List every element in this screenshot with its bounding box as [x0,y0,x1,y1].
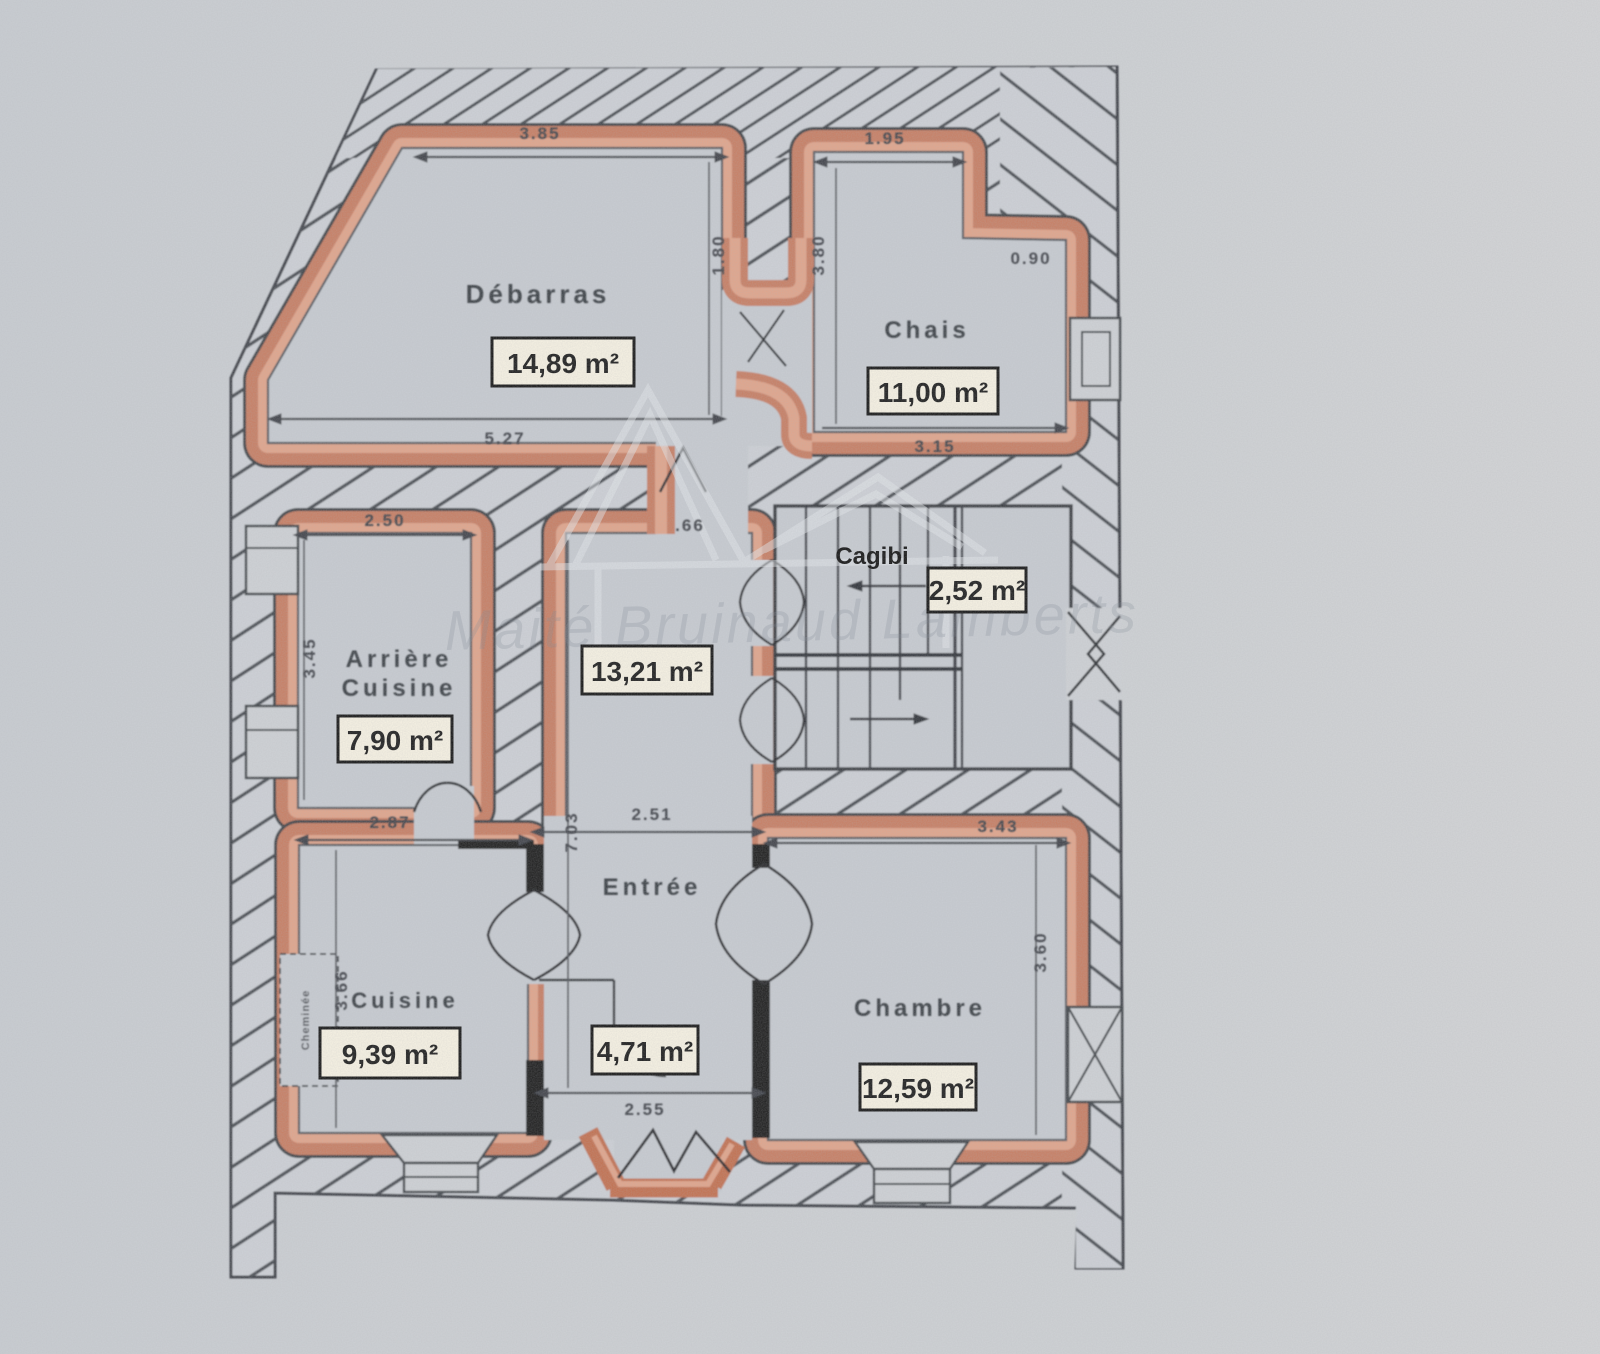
svg-text:2.50: 2.50 [364,511,405,530]
svg-text:2,52 m²: 2,52 m² [929,575,1026,606]
svg-text:Chais: Chais [884,317,969,344]
svg-text:12,59 m²: 12,59 m² [862,1073,974,1104]
svg-text:1.95: 1.95 [864,129,905,148]
svg-text:Débarras: Débarras [466,279,611,309]
svg-text:1.80: 1.80 [709,234,728,275]
svg-text:3.45: 3.45 [300,637,319,678]
svg-text:3.85: 3.85 [519,124,560,143]
svg-text:2.55: 2.55 [624,1100,665,1119]
svg-text:3.66: 3.66 [332,969,351,1010]
svg-text:3.60: 3.60 [1031,931,1050,972]
svg-text:Cheminée: Cheminée [300,990,312,1051]
svg-text:7.03: 7.03 [562,811,581,852]
svg-text:3.80: 3.80 [809,234,828,275]
svg-text:7,90 m²: 7,90 m² [347,725,444,756]
svg-text:4,71 m²: 4,71 m² [597,1036,694,1067]
svg-text:Cuisine: Cuisine [342,675,457,702]
svg-text:2.51: 2.51 [631,805,672,824]
svg-text:9,39 m²: 9,39 m² [342,1039,439,1070]
svg-text:Cuisine: Cuisine [351,988,458,1013]
svg-text:Arrière: Arrière [346,646,453,673]
svg-text:2.87: 2.87 [369,813,410,832]
svg-text:0.90: 0.90 [1010,249,1051,268]
svg-text:3.15: 3.15 [914,437,955,456]
svg-text:.66: .66 [675,516,705,535]
svg-text:13,21 m²: 13,21 m² [591,656,703,687]
svg-text:5.27: 5.27 [484,429,525,448]
svg-text:Entrée: Entrée [603,874,702,901]
svg-text:Chambre: Chambre [854,995,986,1022]
svg-text:11,00 m²: 11,00 m² [878,377,989,408]
svg-text:3.43: 3.43 [977,817,1018,836]
svg-text:Cagibi: Cagibi [835,543,908,570]
svg-text:14,89 m²: 14,89 m² [507,348,619,379]
